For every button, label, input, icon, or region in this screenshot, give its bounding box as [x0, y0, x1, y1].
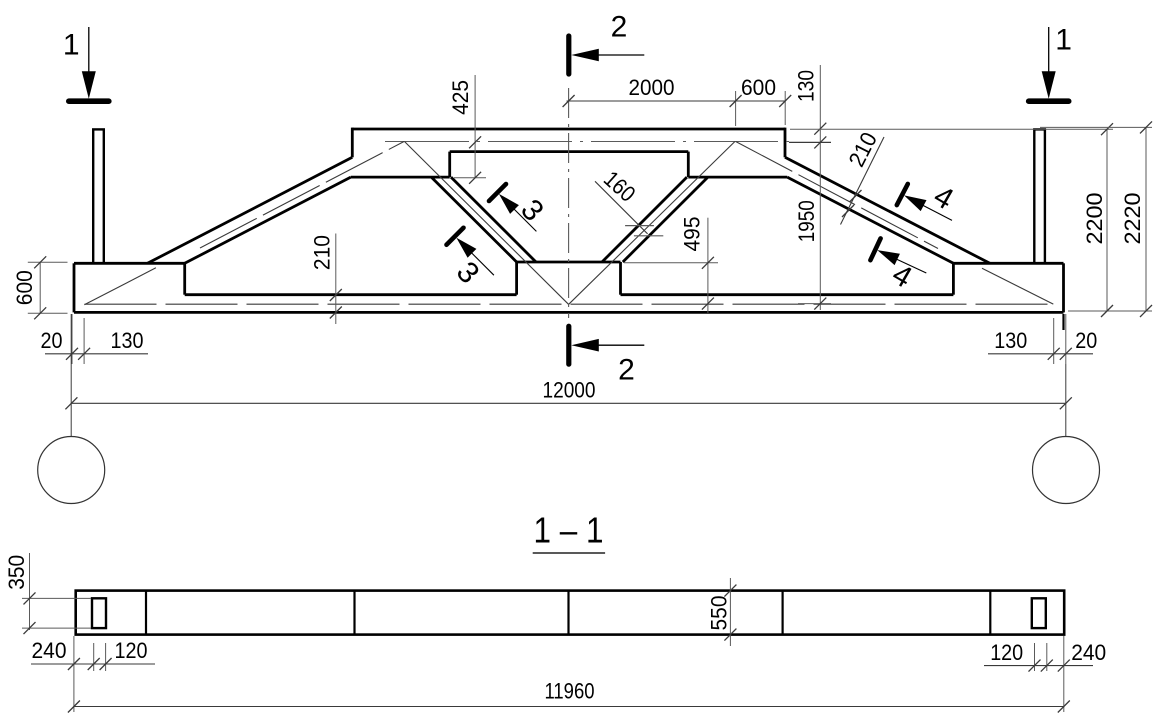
svg-text:425: 425 [448, 80, 473, 115]
svg-text:240: 240 [1071, 640, 1106, 665]
svg-text:600: 600 [741, 75, 776, 100]
svg-text:1950: 1950 [794, 200, 819, 242]
svg-text:120: 120 [115, 638, 148, 663]
svg-text:20: 20 [41, 328, 63, 353]
svg-text:350: 350 [4, 555, 29, 590]
svg-text:1: 1 [63, 28, 80, 61]
svg-text:130: 130 [794, 70, 819, 102]
svg-text:1 – 1: 1 – 1 [534, 510, 604, 551]
svg-text:2: 2 [611, 11, 628, 44]
svg-text:495: 495 [680, 217, 705, 252]
svg-text:1: 1 [1055, 24, 1072, 57]
svg-text:120: 120 [990, 640, 1023, 665]
svg-text:2000: 2000 [629, 75, 675, 100]
svg-text:2: 2 [618, 354, 635, 387]
svg-text:600: 600 [12, 270, 37, 305]
svg-text:2200: 2200 [1082, 193, 1107, 245]
svg-text:130: 130 [111, 328, 144, 353]
svg-text:240: 240 [32, 638, 67, 663]
svg-text:130: 130 [994, 328, 1027, 353]
svg-text:550: 550 [707, 596, 732, 631]
svg-text:11960: 11960 [545, 679, 595, 704]
svg-text:2220: 2220 [1120, 193, 1145, 245]
svg-text:12000: 12000 [543, 378, 596, 403]
svg-text:210: 210 [310, 235, 335, 270]
svg-text:20: 20 [1075, 328, 1097, 353]
